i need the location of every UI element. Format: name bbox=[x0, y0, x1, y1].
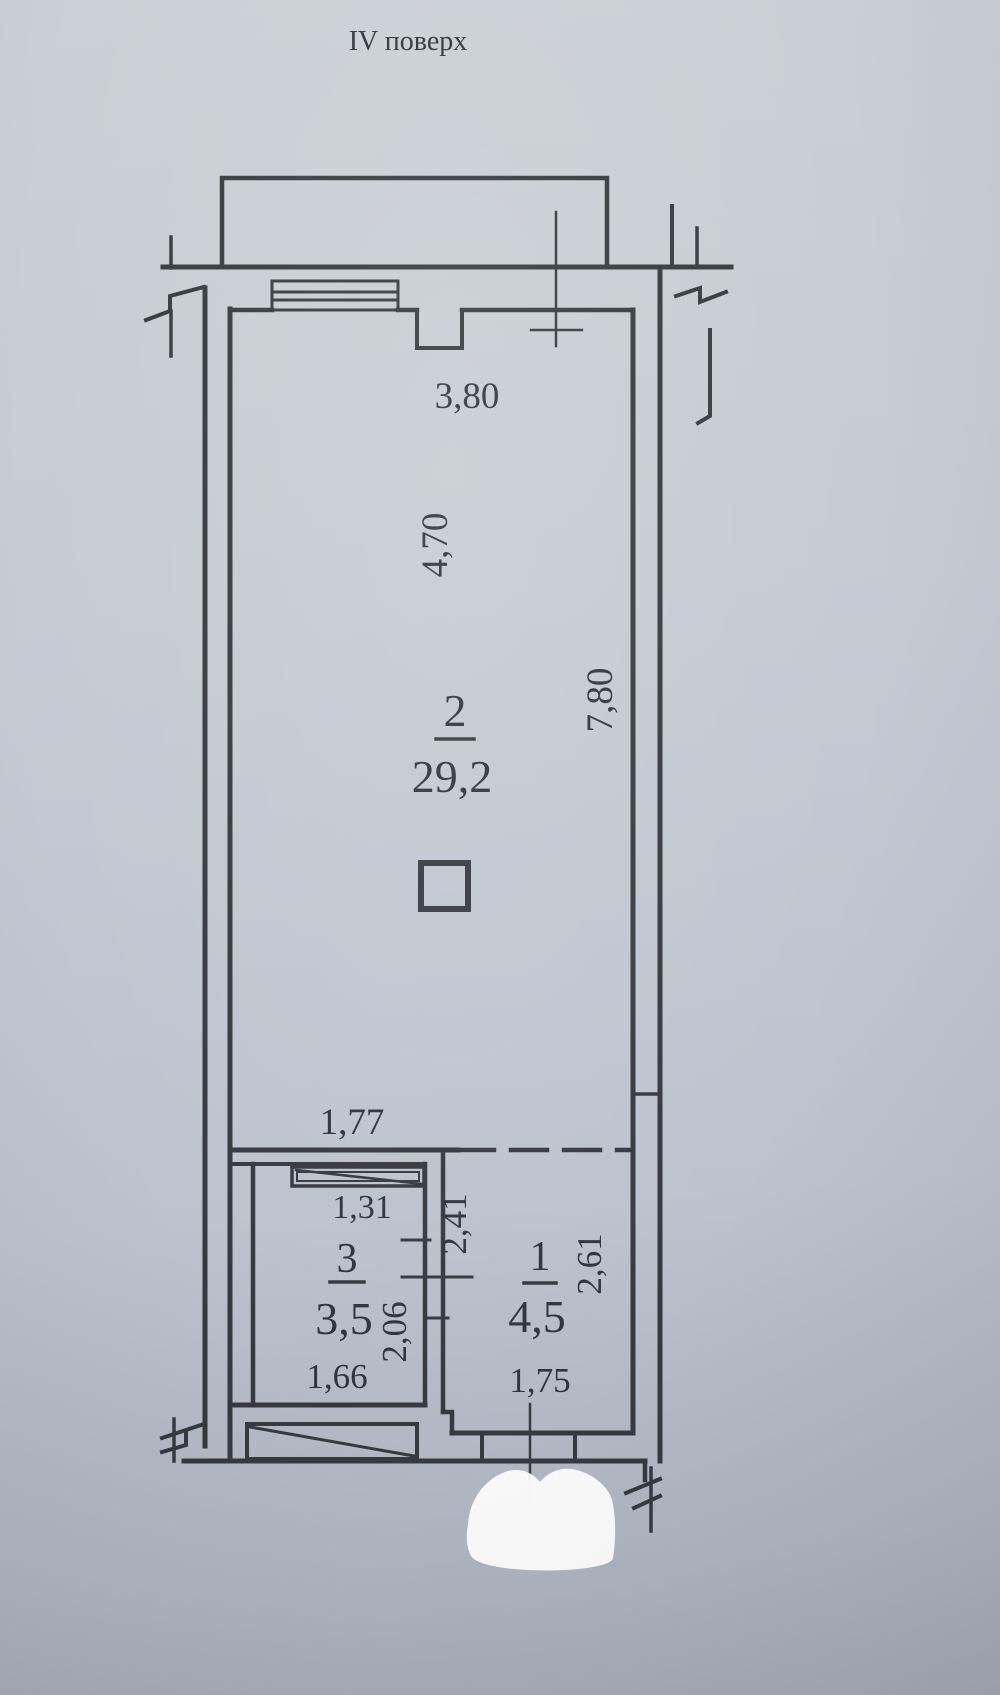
wall-break-left-top-icon bbox=[146, 287, 204, 320]
wall-break-right-bottom-icon bbox=[626, 1479, 660, 1508]
room2-window bbox=[272, 281, 398, 310]
wall-break-right-top-icon bbox=[676, 288, 726, 302]
room2-number-label: 2 bbox=[444, 685, 467, 736]
dim-room1-length: 2,61 bbox=[570, 1233, 609, 1294]
room2-area-label: 29,2 bbox=[412, 751, 493, 802]
room1-area-label: 4,5 bbox=[508, 1291, 566, 1342]
entrance-opening-ticks bbox=[482, 1433, 575, 1461]
balcony-outline bbox=[222, 178, 607, 266]
white-patch bbox=[467, 1469, 615, 1571]
dim-room3-window: 1,31 bbox=[332, 1189, 392, 1226]
floor-plan-photo: IV поверх 3,80 4,70 7,80 2 29,2 1,77 1,3… bbox=[0, 0, 1000, 1695]
room3-area-label: 3,5 bbox=[315, 1293, 373, 1344]
floor-title: IV поверх bbox=[349, 26, 468, 57]
dim-window-top: 3,80 bbox=[435, 376, 500, 417]
wall-break-left-bottom-icon bbox=[162, 1424, 204, 1452]
dim-room3-width: 1,66 bbox=[306, 1357, 367, 1396]
vent-shaft-symbol bbox=[421, 863, 468, 909]
room3-balcony-door-diagonal bbox=[250, 1427, 414, 1456]
dim-hall-length: 2,41 bbox=[435, 1193, 474, 1254]
dim-room2-width: 4,70 bbox=[415, 513, 456, 578]
partition-bottom-step bbox=[443, 1412, 452, 1433]
room1-number-label: 1 bbox=[530, 1234, 551, 1280]
dim-room1-width: 1,75 bbox=[509, 1361, 570, 1400]
dim-opening-room2: 1,77 bbox=[320, 1102, 385, 1143]
top-wall-niche bbox=[417, 310, 462, 348]
dim-room3-length: 2,06 bbox=[375, 1301, 414, 1362]
floor-plan-svg: IV поверх 3,80 4,70 7,80 2 29,2 1,77 1,3… bbox=[0, 0, 1000, 1695]
room3-number-label: 3 bbox=[337, 1236, 358, 1282]
dim-room2-length: 7,80 bbox=[580, 668, 621, 733]
wall-break-right-top-tail bbox=[698, 330, 710, 423]
